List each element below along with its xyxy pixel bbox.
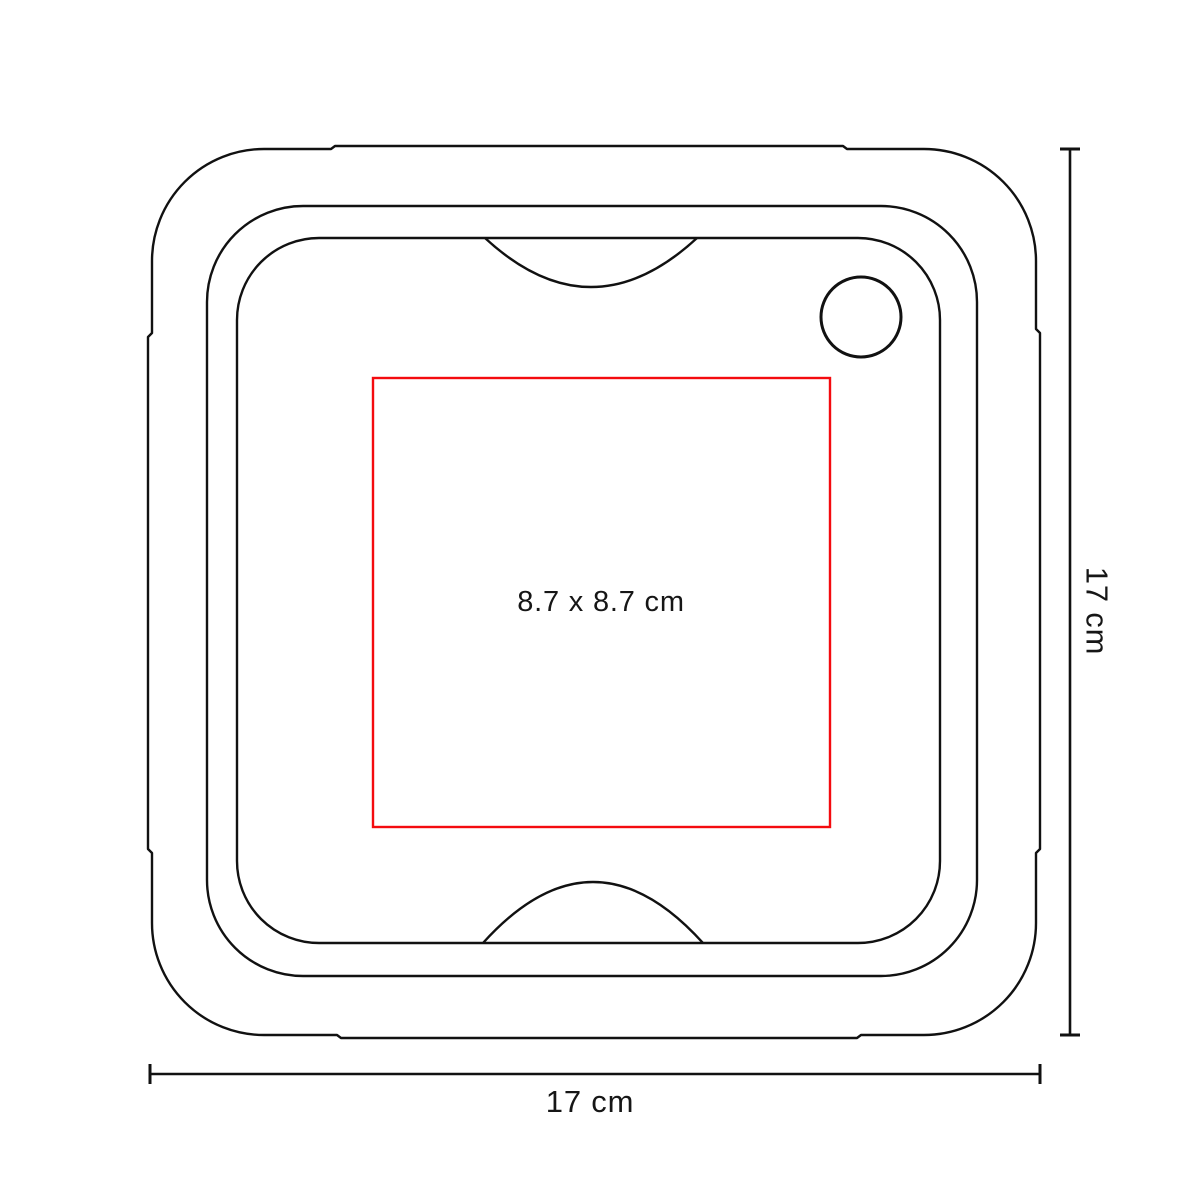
width-dimension-label: 17 cm <box>546 1084 634 1119</box>
width-dimension <box>150 1064 1040 1084</box>
imprint-area-label: 8.7 x 8.7 cm <box>517 586 685 618</box>
imprint-area: 8.7 x 8.7 cm <box>373 378 830 827</box>
height-dimension <box>1060 149 1080 1035</box>
vent-hole-circle <box>821 277 901 357</box>
product-dimension-diagram: 8.7 x 8.7 cm 17 cm 17 cm <box>0 0 1200 1200</box>
lid-top-tab-arc <box>485 238 697 287</box>
diagram-svg: 8.7 x 8.7 cm 17 cm 17 cm <box>0 0 1200 1200</box>
lid-bottom-tab-arc <box>483 882 703 943</box>
height-dimension-label: 17 cm <box>1080 567 1115 655</box>
